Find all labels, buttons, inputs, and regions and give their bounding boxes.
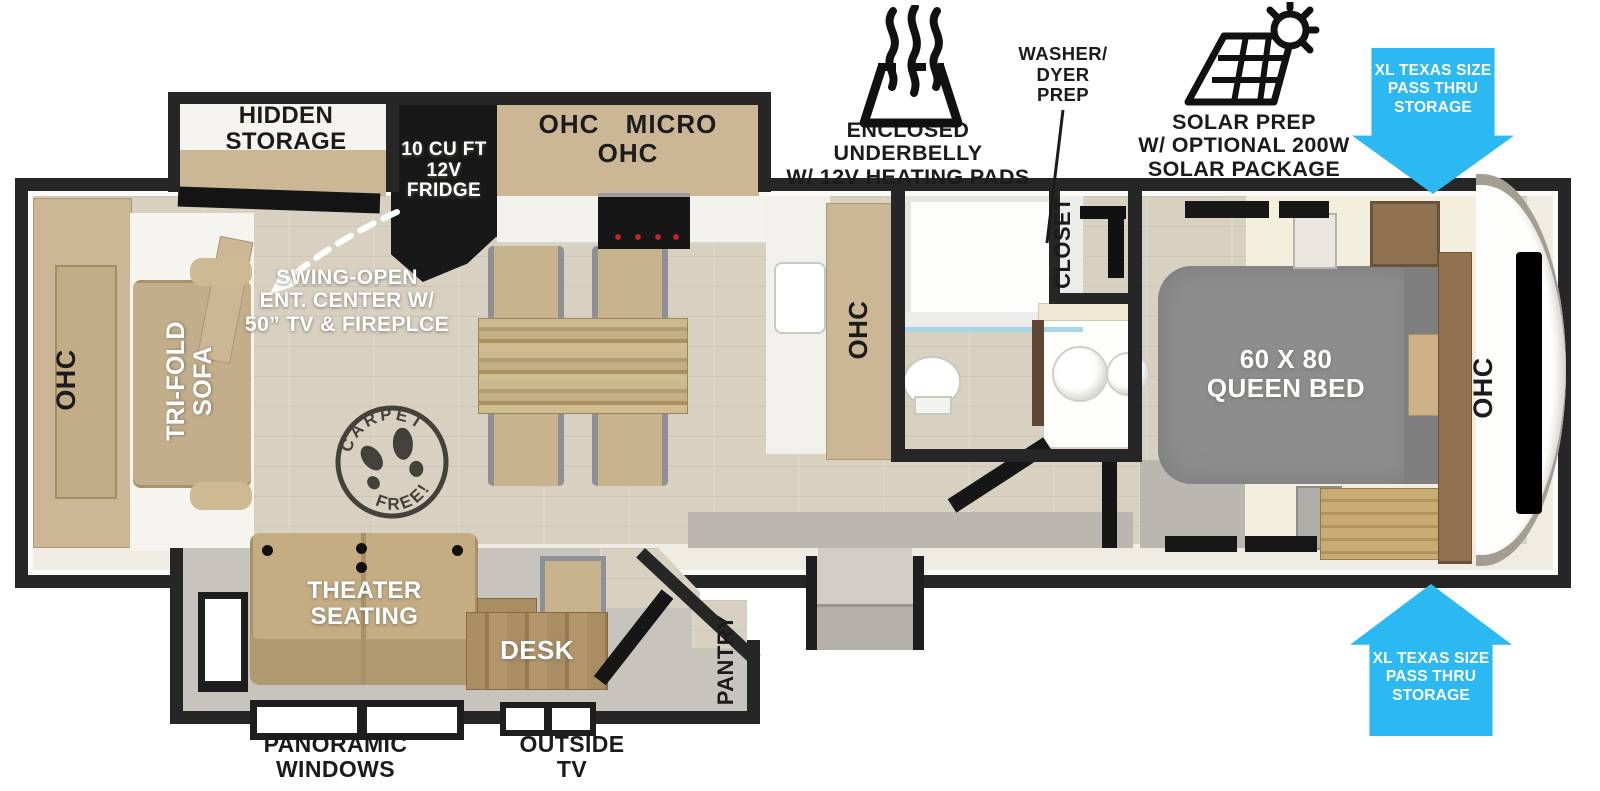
theater-cupholder: [262, 545, 273, 556]
bedroom-step-edge: [1102, 452, 1117, 548]
bedroom-window: [1245, 536, 1317, 552]
front-cap-window: [1516, 252, 1542, 514]
washer-dryer-label: WASHER/ DYER PREP: [1008, 40, 1118, 110]
hidden-storage-wall-left: [168, 92, 180, 192]
solar-prep-label: SOLAR PREP W/ OPTIONAL 200W SOLAR PACKAG…: [1128, 110, 1360, 182]
swing-open-label: SWING-OPEN ENT. CENTER W/ 50” TV & FIREP…: [232, 262, 462, 340]
hidden-storage-label: HIDDEN STORAGE: [196, 100, 376, 158]
sofa-label: TRI-FOLD SOFA: [161, 319, 219, 443]
pass-thru-arrow-bottom: XL TEXAS SIZE PASS THRU STORAGE: [1350, 584, 1512, 736]
kitchen-slide-wall-right: [758, 92, 771, 192]
shower-glass: [905, 327, 1083, 332]
slide-window-side: [198, 592, 248, 692]
solar-prep-icon: [1172, 2, 1320, 118]
underbelly-label: ENCLOSED UNDERBELLY W/ 12V HEATING PADS: [772, 128, 1044, 180]
cooktop-knobs: [610, 234, 680, 240]
pass-thru-bottom-text: XL TEXAS SIZE PASS THRU STORAGE: [1373, 650, 1490, 705]
theater-cupholder: [452, 545, 463, 556]
kitchen-cabinets-label: OHC MICRO OHC: [497, 118, 759, 160]
hallway-floor: [688, 512, 1133, 548]
panoramic-windows-label: PANORAMIC WINDOWS: [238, 728, 433, 786]
bedroom-window: [1279, 201, 1329, 218]
sink-cabinet-label: OHC: [841, 290, 875, 370]
nightstand-top: [1293, 213, 1337, 269]
bathroom-wall-bottom: [891, 449, 1141, 462]
sofa-armrest-bottom: [190, 482, 252, 510]
closet-label: CLOSET: [1048, 188, 1078, 298]
vanity-counter: [1038, 303, 1138, 321]
bedroom-window: [1165, 536, 1237, 552]
theater-seating-label: THEATER SEATING: [262, 572, 467, 636]
dinette-chair: [592, 246, 668, 322]
entry-step-tread: [817, 556, 913, 607]
bedroom-bottom-cabinet: [1320, 488, 1440, 560]
cooktop: [598, 193, 690, 249]
pass-thru-arrow-top: XL TEXAS SIZE PASS THRU STORAGE: [1352, 48, 1514, 194]
closet-shelf: [1108, 216, 1124, 278]
dinette-chair: [488, 246, 564, 322]
rear-cabinet-label: OHC: [50, 340, 84, 420]
dinette-chair: [592, 410, 668, 486]
bathroom-wall-right: [1128, 190, 1142, 462]
kitchen-sink: [774, 262, 826, 334]
floorplan-canvas: HIDDEN STORAGE OHC MICRO OHC 10 CU FT 12…: [0, 0, 1600, 791]
queen-bed-label: 60 X 80 QUEEN BED: [1176, 342, 1396, 406]
vanity-sink: [1052, 346, 1108, 402]
bedroom-cabinet-label: OHC: [1467, 348, 1501, 428]
dinette-table: [478, 318, 688, 414]
toilet-tank: [914, 396, 952, 415]
theater-cupholder: [356, 543, 367, 554]
dinette-chair: [488, 410, 564, 486]
outside-tv-label: OUTSIDE TV: [482, 728, 662, 786]
pantry-label: PANTRY: [711, 605, 741, 715]
heating-pads-icon: [848, 5, 974, 131]
bathroom-door: [1032, 320, 1044, 426]
slide-wall-left: [170, 548, 183, 724]
fridge-label: 10 CU FT 12V FRIDGE: [391, 110, 497, 232]
desk-label: DESK: [482, 630, 592, 670]
pass-thru-top-text: XL TEXAS SIZE PASS THRU STORAGE: [1375, 62, 1492, 117]
kitchen-slide-wall-top: [386, 92, 771, 105]
bathroom-wall-left: [891, 190, 905, 462]
bedroom-top-cabinet: [1370, 201, 1440, 267]
bedroom-window: [1185, 201, 1269, 218]
